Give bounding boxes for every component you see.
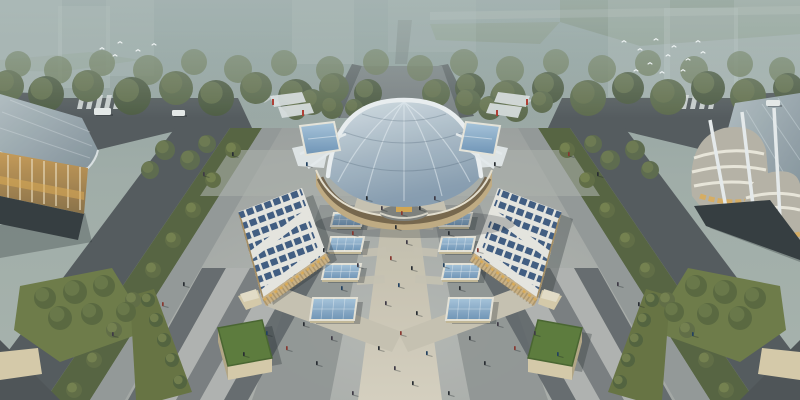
color-grade-tint: [0, 0, 800, 400]
aerial-rendering-stage: [0, 0, 800, 400]
architectural-rendering: [0, 0, 800, 400]
